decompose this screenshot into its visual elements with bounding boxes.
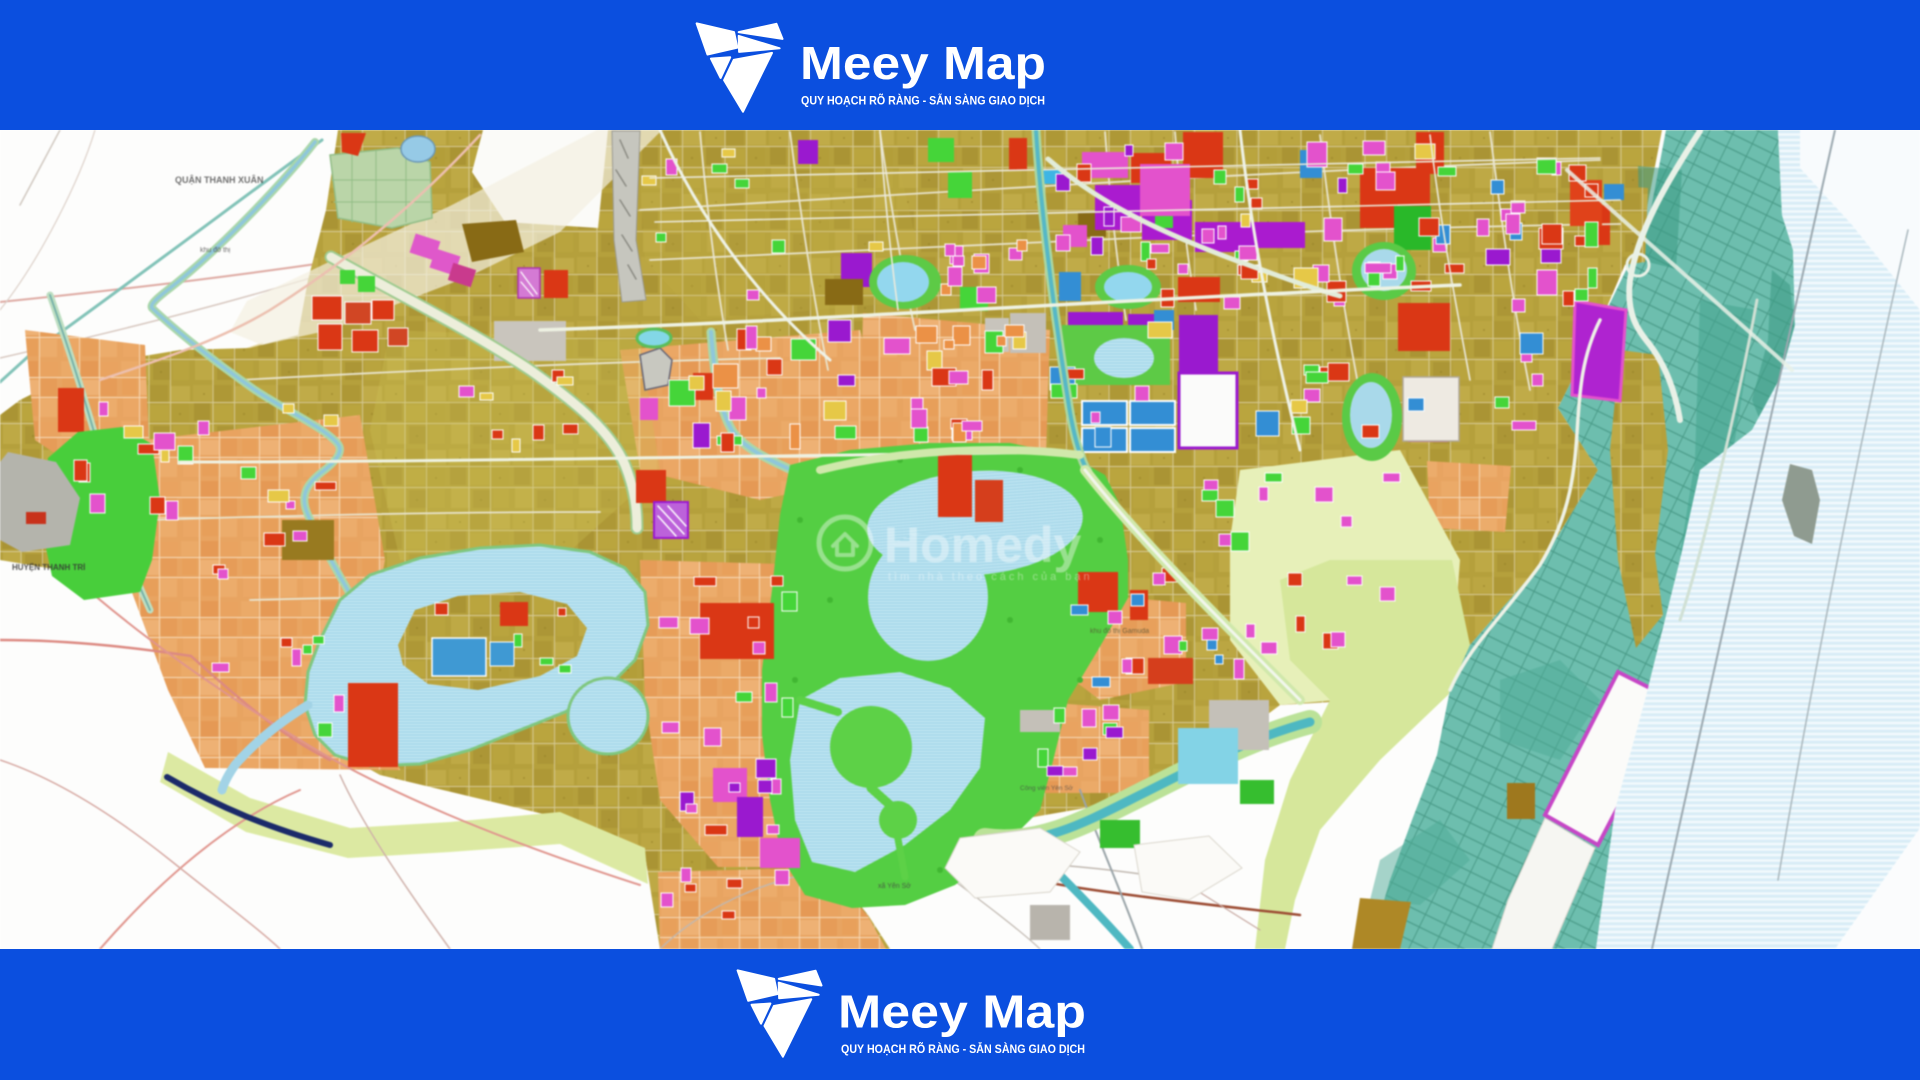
svg-text:HUYỆN THANH TRÌ: HUYỆN THANH TRÌ	[12, 563, 85, 572]
svg-text:tìm nhà theo cách của bạn: tìm nhà theo cách của bạn	[888, 571, 1093, 583]
svg-text:Công viên Yên Sở: Công viên Yên Sở	[1020, 784, 1074, 792]
svg-text:xã Yên Sở: xã Yên Sở	[878, 882, 911, 890]
svg-text:Homedy: Homedy	[884, 517, 1081, 573]
svg-text:khu đô thị: khu đô thị	[200, 247, 231, 254]
svg-text:Meey Map: Meey Map	[838, 986, 1086, 1038]
svg-text:khu đô thị Gamuda: khu đô thị Gamuda	[1090, 628, 1149, 635]
svg-text:Meey Map: Meey Map	[800, 37, 1046, 89]
svg-text:QUY HOẠCH RÕ RÀNG - SẴN SÀNG G: QUY HOẠCH RÕ RÀNG - SẴN SÀNG GIAO DỊCH	[801, 95, 1045, 108]
svg-text:QUẬN THANH XUÂN: QUẬN THANH XUÂN	[175, 174, 264, 185]
svg-text:QUY HOẠCH RÕ RÀNG - SẴN SÀNG G: QUY HOẠCH RÕ RÀNG - SẴN SÀNG GIAO DỊCH	[841, 1043, 1085, 1056]
